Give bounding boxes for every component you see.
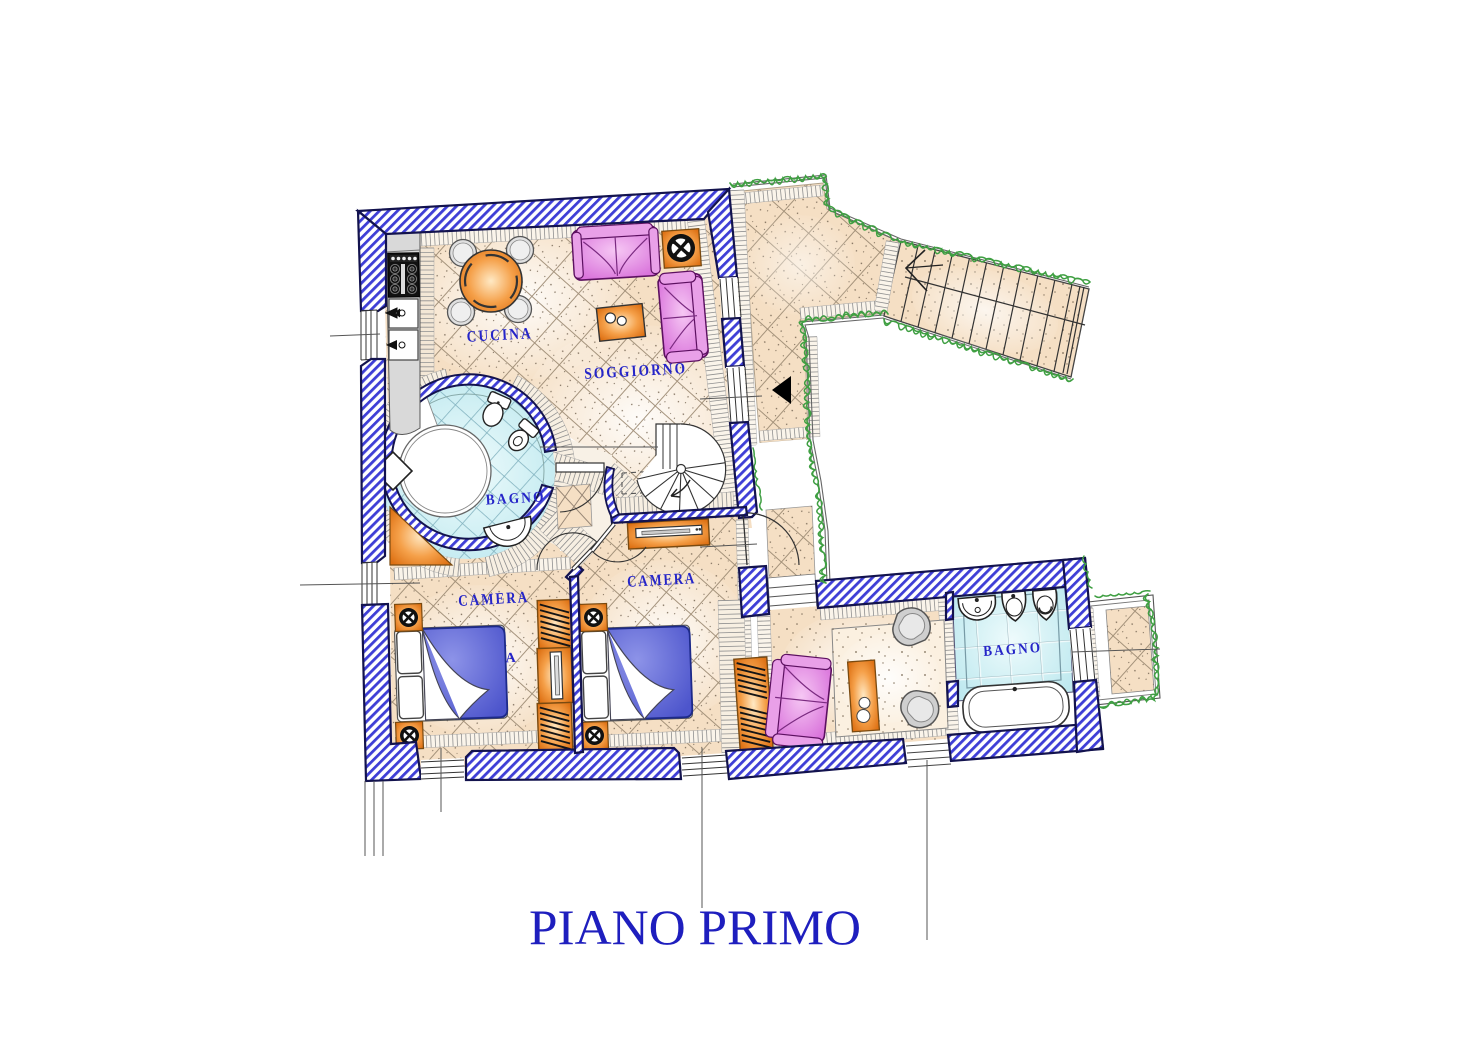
svg-text:A: A — [505, 651, 518, 667]
svg-text:BAGNO: BAGNO — [485, 489, 546, 508]
svg-text:PIANO PRIMO: PIANO PRIMO — [529, 899, 861, 955]
